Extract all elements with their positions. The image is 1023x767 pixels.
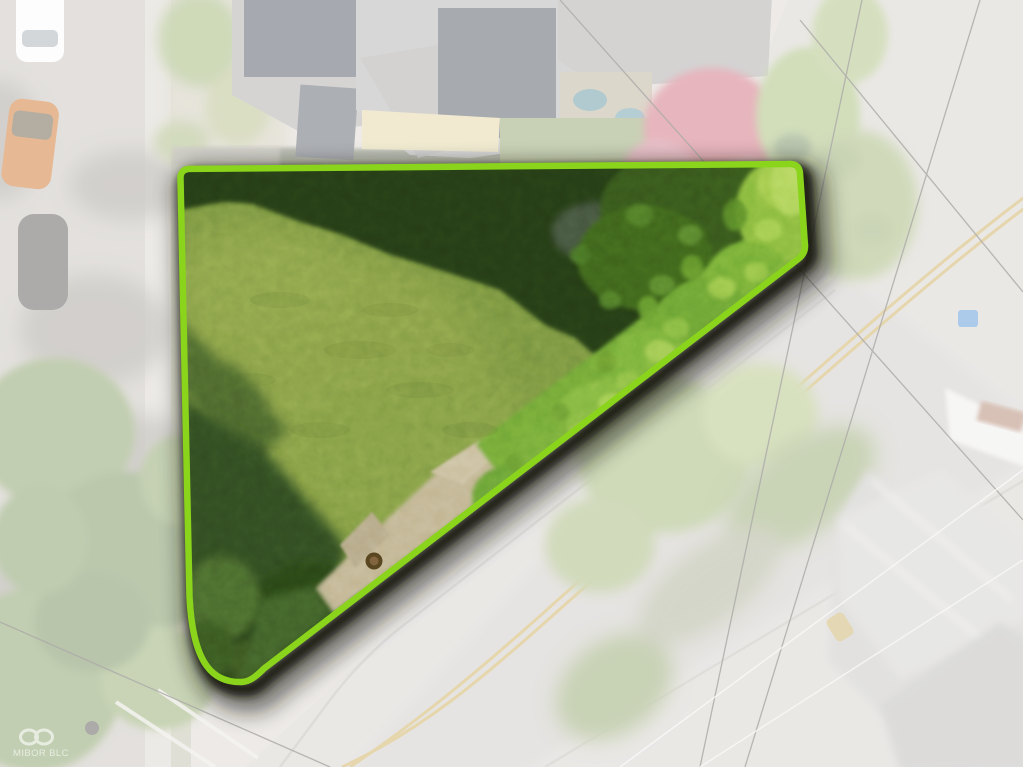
svg-text:MIBOR BLC: MIBOR BLC: [13, 748, 69, 759]
